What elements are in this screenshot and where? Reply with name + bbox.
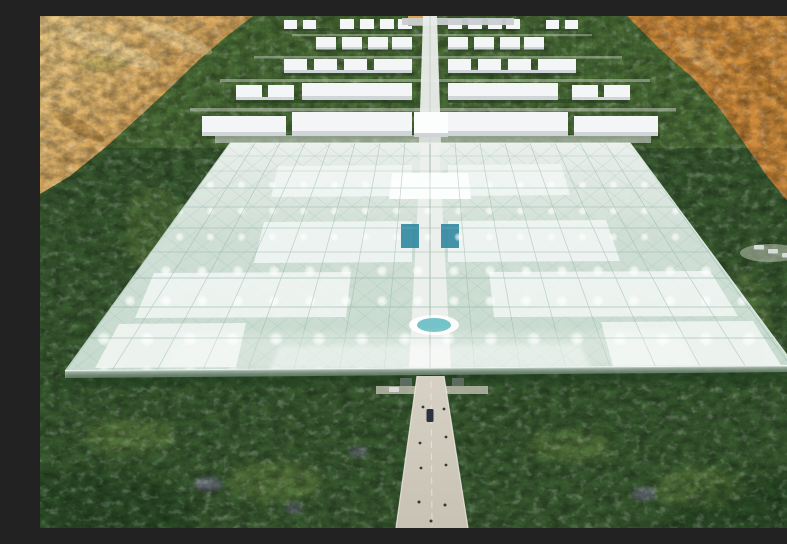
service-road-behind-glass bbox=[215, 135, 651, 143]
gate-building bbox=[414, 112, 448, 137]
front-glow bbox=[160, 331, 700, 371]
aerial-render-scene: Aerial 3D rendering of a vast glass gree… bbox=[40, 16, 787, 528]
dark-car bbox=[427, 409, 434, 422]
distant-long-building bbox=[402, 18, 514, 25]
gate-block-right bbox=[452, 378, 464, 386]
gate-block-left bbox=[400, 378, 412, 386]
light-van bbox=[389, 387, 399, 392]
